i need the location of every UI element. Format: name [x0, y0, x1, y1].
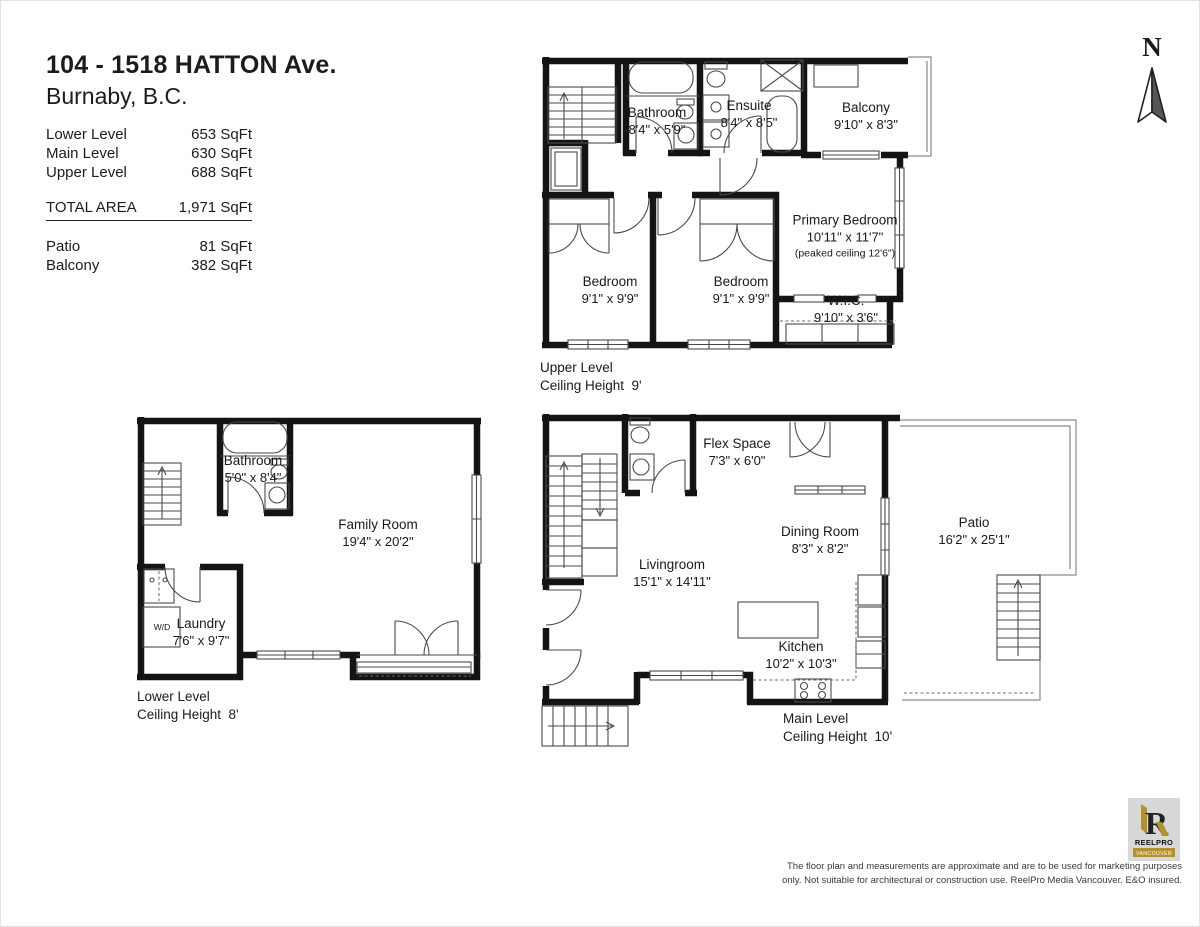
- area-value: 382 SqFt: [191, 256, 252, 275]
- compass: N: [1124, 32, 1180, 126]
- total-area-value: 1,971 SqFt: [179, 199, 252, 216]
- area-label: Upper Level: [46, 163, 127, 182]
- room-label-family-room: Family Room 19'4" x 20'2": [338, 516, 418, 550]
- lower-stairs: [143, 463, 181, 525]
- upper-bedroom2-closet: [658, 198, 774, 261]
- floorplan-main-drawing: [540, 410, 1090, 755]
- room-label-ensuite: Ensuite 8'4" x 8'5": [721, 97, 778, 131]
- main-stairs: [546, 454, 617, 578]
- floorplan-main: Flex Space 7'3" x 6'0" Dining Room 8'3" …: [540, 410, 1090, 755]
- upper-bedroom1-closet: [549, 198, 649, 253]
- area-value: 653 SqFt: [191, 125, 252, 144]
- room-label-bathroom-lower: Bathroom 5'0" x 8'4": [224, 452, 283, 486]
- floorplan-lower: Bathroom 5'0" x 8'4" Family Room 19'4" x…: [135, 415, 510, 735]
- washer-dryer-label: W/D: [154, 622, 171, 632]
- room-label-laundry: Laundry 7'6" x 9'7": [173, 615, 230, 649]
- main-dining-doors: [790, 422, 830, 457]
- room-label-balcony: Balcony 9'10" x 8'3": [834, 99, 898, 133]
- level-label-main: Main Level Ceiling Height 10': [783, 710, 892, 746]
- area-value: 688 SqFt: [191, 163, 252, 182]
- room-label-primary-bedroom: Primary Bedroom 10'11" x 11'7" (peaked c…: [792, 212, 897, 263]
- room-label-flex-space: Flex Space 7'3" x 6'0": [703, 435, 771, 469]
- main-left-doors: [546, 590, 581, 685]
- main-entry-steps: [542, 706, 628, 746]
- patio-stairs: [997, 575, 1040, 660]
- room-label-bedroom-2: Bedroom 9'1" x 9'9": [713, 273, 770, 307]
- balcony-outline: [908, 57, 931, 156]
- room-label-livingroom: Livingroom 15'1" x 14'11": [633, 556, 711, 590]
- room-label-wic: W.I.C. 9'10" x 3'6": [814, 292, 878, 326]
- compass-north-label: N: [1124, 32, 1180, 62]
- area-label: Balcony: [46, 256, 99, 275]
- disclaimer-line-2: only. Not suitable for architectural or …: [782, 874, 1182, 888]
- north-arrow-icon: [1130, 66, 1174, 126]
- room-label-bedroom-1: Bedroom 9'1" x 9'9": [582, 273, 639, 307]
- disclaimer: The floor plan and measurements are appr…: [782, 860, 1182, 887]
- room-label-bathroom-upper: Bathroom 8'4" x 5'9": [628, 104, 687, 138]
- disclaimer-line-1: The floor plan and measurements are appr…: [782, 860, 1182, 874]
- balcony-planter: [814, 65, 858, 87]
- floor-plan-page: 104 - 1518 HATTON Ave. Burnaby, B.C. Low…: [0, 0, 1200, 927]
- area-table: Lower Level 653 SqFt Main Level 630 SqFt…: [46, 125, 252, 182]
- upper-primary-door: [720, 158, 757, 195]
- area-row-balcony: Balcony 382 SqFt: [46, 256, 252, 275]
- level-label-lower: Lower Level Ceiling Height 8': [137, 688, 239, 724]
- floorplan-upper: Bathroom 8'4" x 5'9" Ensuite 8'4" x 8'5"…: [540, 55, 936, 400]
- area-row-upper: Upper Level 688 SqFt: [46, 163, 252, 182]
- room-label-kitchen: Kitchen 10'2" x 10'3": [765, 638, 836, 672]
- svg-text:REELPRO: REELPRO: [1135, 838, 1173, 847]
- level-label-upper: Upper Level Ceiling Height 9': [540, 359, 642, 395]
- area-label: Patio: [46, 237, 80, 256]
- area-value: 81 SqFt: [199, 237, 252, 256]
- area-row-lower: Lower Level 653 SqFt: [46, 125, 252, 144]
- lower-french-doors: [357, 621, 477, 655]
- area-label: Lower Level: [46, 125, 127, 144]
- room-label-dining-room: Dining Room 8'3" x 8'2": [781, 523, 859, 557]
- total-area-label: TOTAL AREA: [46, 199, 137, 216]
- upper-hall-closet: [551, 148, 581, 190]
- address-line-2: Burnaby, B.C.: [46, 81, 366, 111]
- upper-stairs: [548, 87, 616, 143]
- svg-text:VANCOUVER: VANCOUVER: [1136, 851, 1172, 857]
- extra-area-rows: Patio 81 SqFt Balcony 382 SqFt: [46, 237, 252, 275]
- room-label-patio: Patio 16'2" x 25'1": [938, 514, 1009, 548]
- reelpro-logo-icon: R REELPRO VANCOUVER: [1128, 798, 1180, 861]
- patio-outline: [900, 420, 1076, 700]
- title-block: 104 - 1518 HATTON Ave. Burnaby, B.C. Low…: [46, 50, 366, 275]
- area-row-main: Main Level 630 SqFt: [46, 144, 252, 163]
- reelpro-logo: R REELPRO VANCOUVER: [1128, 798, 1180, 866]
- main-powder-room-fixtures: [630, 418, 685, 493]
- area-row-patio: Patio 81 SqFt: [46, 237, 252, 256]
- total-area-row: TOTAL AREA 1,971 SqFt: [46, 199, 252, 221]
- area-value: 630 SqFt: [191, 144, 252, 163]
- address-line-1: 104 - 1518 HATTON Ave.: [46, 50, 366, 80]
- area-label: Main Level: [46, 144, 119, 163]
